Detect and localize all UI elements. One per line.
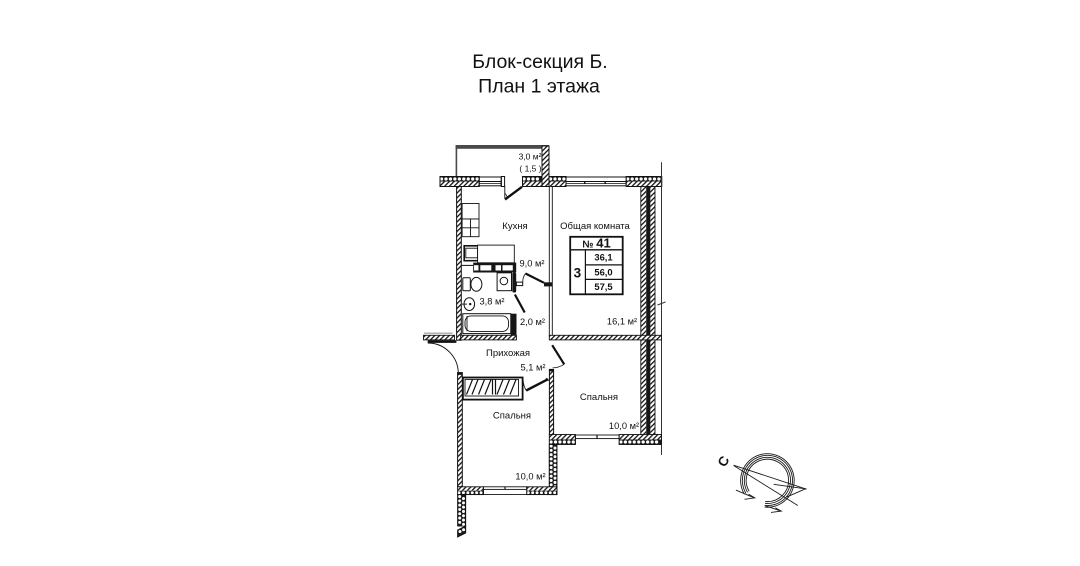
svg-text:План 1 этажа: План 1 этажа <box>478 76 600 98</box>
svg-text:57,5: 57,5 <box>594 281 612 292</box>
svg-text:Общая комната: Общая комната <box>560 221 630 232</box>
svg-text:10,0 м²: 10,0 м² <box>515 472 545 482</box>
svg-text:3: 3 <box>574 265 582 280</box>
svg-text:Кухня: Кухня <box>502 221 527 232</box>
svg-text:Спальня: Спальня <box>493 411 531 422</box>
svg-text:Прихожая: Прихожая <box>486 348 530 359</box>
svg-text:3,0 м²: 3,0 м² <box>519 152 542 162</box>
svg-text:( 1,5 ): ( 1,5 ) <box>519 164 541 174</box>
svg-text:Спальня: Спальня <box>580 392 618 403</box>
svg-text:10,0 м²: 10,0 м² <box>609 421 639 431</box>
svg-text:2,0 м²: 2,0 м² <box>520 317 545 327</box>
svg-text:5,1 м²: 5,1 м² <box>521 363 546 373</box>
svg-text:36,1: 36,1 <box>594 252 612 263</box>
svg-text:Блок-секция Б.: Блок-секция Б. <box>472 51 607 73</box>
svg-text:56,0: 56,0 <box>594 266 612 277</box>
svg-text:3,8 м²: 3,8 м² <box>480 297 505 307</box>
svg-text:16,1 м²: 16,1 м² <box>607 317 637 327</box>
svg-text:9,0 м²: 9,0 м² <box>520 259 545 269</box>
